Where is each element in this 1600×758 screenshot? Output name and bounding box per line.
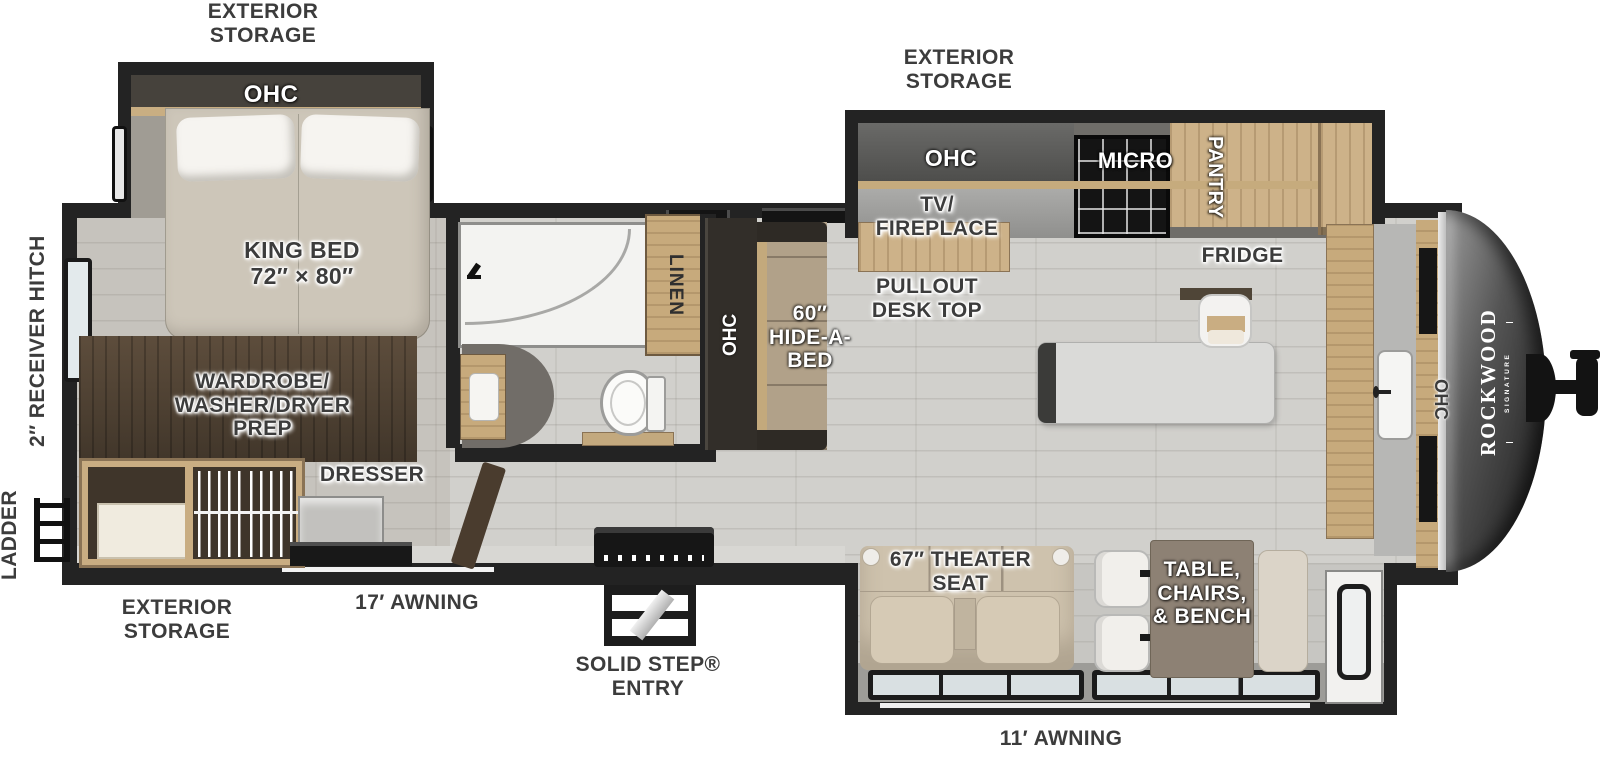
bedroom-ohc-label: OHC — [216, 82, 326, 109]
slideout-end-wall — [1325, 570, 1383, 704]
shower-head-icon — [467, 275, 481, 279]
king-bed-label: KING BED 72″ × 80″ — [212, 238, 392, 290]
faucet-icon — [1373, 386, 1379, 398]
solid-step-assembly — [604, 585, 696, 647]
step-side — [688, 585, 696, 646]
window-pane — [873, 675, 1079, 695]
window-pane — [1097, 675, 1315, 695]
front-cabinet-run — [1326, 224, 1374, 539]
kitchen-ohc-label: OHC — [906, 146, 996, 172]
brand-rule — [1506, 442, 1513, 443]
exterior-storage-label-rear: EXTERIOR STORAGE — [188, 0, 338, 47]
step-side — [604, 585, 612, 646]
fridge-cabinet — [1318, 123, 1372, 235]
shower-glass-curve — [465, 229, 631, 325]
slideout-end-window-icon — [1337, 584, 1371, 680]
front-sink — [1377, 350, 1413, 440]
theater-cushion — [976, 596, 1060, 664]
theater-armrest — [1052, 548, 1070, 566]
hanger-group — [198, 471, 242, 557]
step-dots — [604, 555, 654, 561]
dinette-bench — [1258, 550, 1308, 672]
wardrobe-cabinet — [79, 458, 305, 568]
shower — [458, 222, 654, 348]
kitchen-island — [1037, 342, 1275, 424]
kitchen-shelf-strip — [858, 181, 1318, 189]
exterior-storage-label-kitchen: EXTERIOR STORAGE — [879, 46, 1039, 93]
micro-label: MICRO — [1078, 149, 1193, 174]
dresser-tv-slab — [290, 542, 412, 566]
sofa-arm-top — [757, 222, 827, 242]
king-bed — [165, 108, 430, 340]
island-end-cap — [1038, 343, 1056, 423]
brand-logo: ROCKWOOD — [1476, 298, 1504, 466]
wardrobe-divider — [185, 465, 193, 561]
dresser-label: DRESSER — [307, 463, 437, 487]
toilet-tank — [646, 376, 666, 432]
pantry-cabinet — [1170, 123, 1318, 227]
awning-17-label: 17′ AWNING — [327, 591, 507, 615]
entry-step-interior — [594, 527, 714, 567]
theater-seat-label: 67″ THEATER SEAT — [868, 548, 1053, 595]
brand-rule — [1506, 322, 1513, 323]
vanity-basin — [469, 373, 499, 421]
dinette-label: TABLE, CHAIRS, & BENCH — [1142, 558, 1262, 629]
solid-step-entry-label: SOLID STEP® ENTRY — [558, 653, 738, 700]
hanger-group — [250, 471, 294, 557]
pillow — [300, 114, 420, 182]
front-wall-window-icon — [1419, 248, 1437, 334]
awning-rail-stripe — [282, 567, 494, 572]
theater-console — [954, 598, 976, 650]
sofa-arm-bottom — [757, 430, 827, 450]
bedroom-window-left-icon — [112, 126, 127, 202]
awning-11-label: 11′ AWNING — [981, 727, 1141, 751]
washer-dryer-prep-box — [97, 503, 189, 559]
linen-label: LINEN — [647, 216, 703, 354]
toilet-seat-line — [610, 380, 646, 426]
tv-fireplace-label: TV/ FIREPLACE — [852, 193, 1022, 240]
pillow — [176, 114, 296, 182]
ladder-label: LADDER — [0, 470, 25, 600]
pullout-desk-label: PULLOUT DESK TOP — [852, 275, 1002, 322]
theater-cushion — [870, 596, 954, 664]
vanity-sink-cabinet — [460, 354, 506, 440]
receiver-hitch-label: 2″ RECEIVER HITCH — [22, 212, 54, 470]
step-rail — [604, 636, 696, 646]
hanger-rod — [194, 511, 298, 514]
hitch-jack-foot-icon — [1570, 350, 1600, 359]
fridge-label: FRIDGE — [1180, 244, 1305, 268]
stool-cushion — [1208, 330, 1244, 344]
sofa-ohc-label: OHC — [711, 290, 751, 380]
slideout-window-icon — [868, 670, 1084, 700]
front-wall-window-icon — [1419, 436, 1437, 522]
hitch-jack-icon — [1576, 356, 1598, 416]
step-rail — [604, 585, 696, 595]
linen-cabinet: LINEN — [645, 214, 705, 356]
floorplan-canvas: TV Opt. LINEN — [0, 0, 1600, 758]
ladder-icon — [34, 498, 70, 562]
step-dots — [660, 555, 704, 561]
stool — [1198, 294, 1252, 348]
pantry-label: PANTRY — [1202, 126, 1228, 228]
wardrobe-label: WARDROBE/ WASHER/DRYER PREP — [150, 370, 375, 441]
slideout-awning-stripe — [880, 703, 1310, 708]
exterior-storage-label-door-side: EXTERIOR STORAGE — [102, 596, 252, 643]
front-ohc-label: OHC — [1428, 360, 1454, 440]
bed-center-seam — [298, 114, 299, 334]
brand-logo-sub: SIGNATURE — [1504, 328, 1516, 438]
